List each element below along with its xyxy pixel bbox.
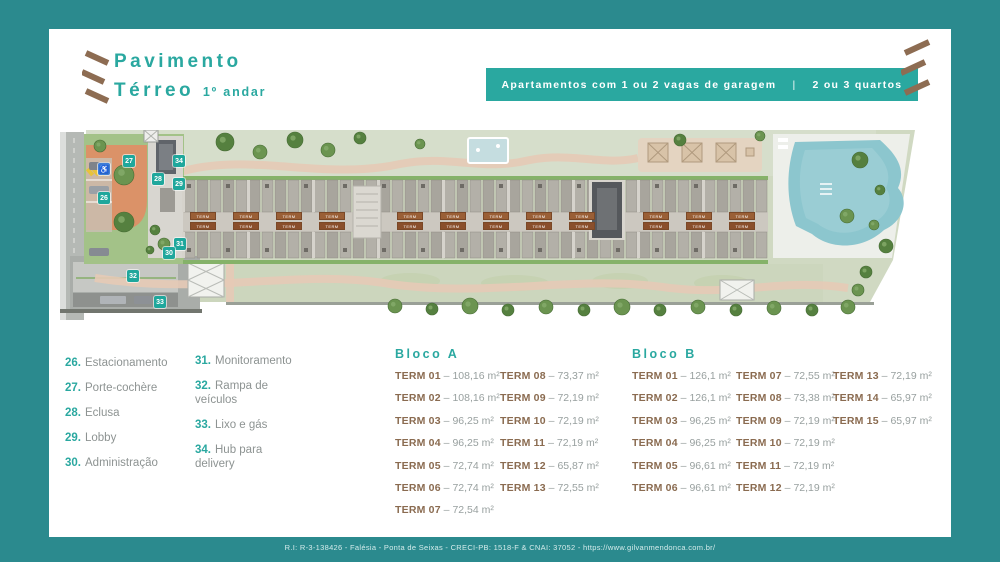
term-row: TERM 06 – 72,74 m² [395,482,500,504]
bloco-a-col1: TERM 01 – 108,16 m²TERM 02 – 108,16 m²TE… [395,370,500,527]
corner-hash-icon [901,39,931,105]
term-name: TERM 09 [736,415,782,427]
plan-term-bar: TERM [276,212,302,220]
term-name: TERM 11 [736,460,781,472]
legend-number: 31. [195,355,211,367]
plan-term-bar: TERM [686,212,712,220]
term-name: TERM 05 [632,460,678,472]
term-area: 96,61 m² [689,460,730,472]
term-name: TERM 08 [736,392,782,404]
title-suffix: 1º andar [203,85,266,99]
term-row: TERM 12 – 72,19 m² [736,482,835,504]
legend-number: 33. [195,419,211,431]
accessible-parking-icon: ♿ [98,163,110,175]
legend-number: 32. [195,380,211,392]
bloco-b-col3: TERM 13 – 72,19 m²TERM 14 – 65,97 m²TERM… [833,370,932,437]
term-dash: – [441,504,453,516]
term-row: TERM 10 – 72,19 m² [736,437,835,459]
plan-badge-33: 33 [154,296,166,308]
term-name: TERM 13 [833,370,879,382]
banner: Apartamentos com 1 ou 2 vagas de garagem… [486,68,918,101]
term-area: 65,97 m² [890,415,931,427]
term-dash: – [782,482,794,494]
plan-term-bar: TERM [729,222,755,230]
plan-badge-31: 31 [174,238,186,250]
bloco-a-col2: TERM 08 – 73,37 m²TERM 09 – 72,19 m²TERM… [500,370,599,504]
legend-item: 31.Monitoramento [195,354,299,368]
plan-badge-34: 34 [173,155,185,167]
legend-number: 30. [65,457,81,469]
term-row: TERM 09 – 72,19 m² [500,392,599,414]
plan-badge-27: 27 [123,155,135,167]
bloco-b-col1: TERM 01 – 126,1 m²TERM 02 – 126,1 m²TERM… [632,370,731,504]
legend-label: Porte-cochère [85,382,157,394]
legend-label: Eclusa [85,407,120,419]
plan-term-bar: TERM [233,212,259,220]
title-line1: Pavimento [114,51,266,73]
legend-item: 32.Rampa de veículos [195,379,299,407]
term-name: TERM 02 [395,392,441,404]
term-area: 72,19 m² [557,415,598,427]
content-panel: Pavimento Térreo 1º andar Apartamentos c… [49,29,951,537]
legend-item: 33.Lixo e gás [195,418,299,432]
legend-item: 29.Lobby [65,431,195,445]
term-area: 96,61 m² [689,482,730,494]
legend-label: Lixo e gás [215,419,267,431]
term-row: TERM 05 – 72,74 m² [395,460,500,482]
term-name: TERM 03 [632,415,678,427]
term-row: TERM 08 – 73,38 m² [736,392,835,414]
plan-term-bar: TERM [526,222,552,230]
term-row: TERM 03 – 96,25 m² [395,415,500,437]
term-row: TERM 13 – 72,19 m² [833,370,932,392]
plan-term-bar: TERM [643,212,669,220]
brand-hash-icon [82,50,110,114]
plan-badge-30: 30 [163,247,175,259]
term-row: TERM 12 – 65,87 m² [500,460,599,482]
term-area: 96,25 m² [452,437,493,449]
term-dash: – [441,437,453,449]
term-area: 108,16 m² [452,370,499,382]
term-dash: – [678,370,690,382]
term-area: 72,54 m² [452,504,493,516]
plan-term-bar: TERM [526,212,552,220]
term-dash: – [879,415,891,427]
plan-term-bar: TERM [190,212,216,220]
term-area: 96,25 m² [689,437,730,449]
term-name: TERM 12 [500,460,546,472]
plan-term-bar: TERM [686,222,712,230]
plan-term-bar: TERM [440,222,466,230]
term-dash: – [781,460,793,472]
term-row: TERM 11 – 72,19 m² [736,460,835,482]
term-dash: – [546,415,558,427]
term-row: TERM 07 – 72,54 m² [395,504,500,526]
term-row: TERM 14 – 65,97 m² [833,392,932,414]
bloco-a-title: Bloco A [395,347,459,361]
plan-badge-26: 26 [98,192,110,204]
plan-term-bar: TERM [643,222,669,230]
term-area: 108,16 m² [452,392,499,404]
term-area: 72,74 m² [452,460,493,472]
term-area: 73,37 m² [557,370,598,382]
term-name: TERM 07 [736,370,782,382]
legend-number: 29. [65,432,81,444]
site-plan: 272834292631303233♿TERMTERMTERMTERMTERMT… [60,130,940,322]
legend-column-1: 26.Estacionamento27.Porte-cochère28.Eclu… [65,356,195,481]
term-dash: – [441,482,453,494]
term-dash: – [441,460,453,472]
legend-label: Monitoramento [215,355,292,367]
term-area: 126,1 m² [689,370,730,382]
term-name: TERM 15 [833,415,879,427]
title-line2: Térreo [114,80,194,101]
legend-number: 28. [65,407,81,419]
term-row: TERM 13 – 72,55 m² [500,482,599,504]
slide: Pavimento Térreo 1º andar Apartamentos c… [0,0,1000,562]
banner-right-text: 2 ou 3 quartos [812,79,902,91]
term-area: 96,25 m² [452,415,493,427]
legend-column-2: 31.Monitoramento32.Rampa de veículos33.L… [195,354,299,482]
legend-number: 26. [65,357,81,369]
banner-left-text: Apartamentos com 1 ou 2 vagas de garagem [502,79,777,91]
bloco-b-col2: TERM 07 – 72,55 m²TERM 08 – 73,38 m²TERM… [736,370,835,504]
term-area: 96,25 m² [689,415,730,427]
plan-badge-29: 29 [173,178,185,190]
term-row: TERM 02 – 108,16 m² [395,392,500,414]
term-area: 72,19 m² [557,437,598,449]
plan-term-bar: TERM [440,212,466,220]
term-row: TERM 06 – 96,61 m² [632,482,731,504]
plan-term-bar: TERM [190,222,216,230]
legend-number: 27. [65,382,81,394]
plan-term-bar: TERM [483,212,509,220]
plan-term-bar: TERM [319,212,345,220]
legend-item: 27.Porte-cochère [65,381,195,395]
legend-item: 26.Estacionamento [65,356,195,370]
term-name: TERM 03 [395,415,441,427]
plan-badge-28: 28 [152,173,164,185]
term-area: 65,87 m² [557,460,598,472]
term-area: 72,74 m² [452,482,493,494]
term-dash: – [441,370,453,382]
term-name: TERM 14 [833,392,879,404]
term-row: TERM 09 – 72,19 m² [736,415,835,437]
term-area: 65,97 m² [890,392,931,404]
term-row: TERM 15 – 65,97 m² [833,415,932,437]
term-row: TERM 07 – 72,55 m² [736,370,835,392]
term-area: 72,19 m² [793,460,834,472]
term-dash: – [678,392,690,404]
term-row: TERM 03 – 96,25 m² [632,415,731,437]
plan-badge-32: 32 [127,270,139,282]
term-dash: – [678,437,690,449]
plan-term-bar: TERM [397,212,423,220]
term-dash: – [441,415,453,427]
term-name: TERM 10 [500,415,546,427]
plan-term-bar: TERM [397,222,423,230]
term-area: 72,19 m² [793,437,834,449]
legend-item: 34.Hub para delivery [195,443,299,471]
term-name: TERM 13 [500,482,546,494]
legend-item: 28.Eclusa [65,406,195,420]
term-row: TERM 11 – 72,19 m² [500,437,599,459]
term-name: TERM 12 [736,482,782,494]
term-dash: – [678,460,690,472]
term-dash: – [545,437,557,449]
term-dash: – [678,415,690,427]
plan-term-bar: TERM [319,222,345,230]
term-dash: – [546,370,558,382]
term-dash: – [879,392,891,404]
legend-item: 30.Administração [65,456,195,470]
term-area: 72,55 m² [793,370,834,382]
term-dash: – [782,392,794,404]
plan-term-bar: TERM [569,212,595,220]
term-name: TERM 11 [500,437,545,449]
term-row: TERM 08 – 73,37 m² [500,370,599,392]
term-dash: – [546,460,558,472]
term-name: TERM 07 [395,504,441,516]
legend-label: Administração [85,457,158,469]
term-name: TERM 01 [395,370,441,382]
term-dash: – [879,370,891,382]
legend-label: Lobby [85,432,116,444]
term-row: TERM 05 – 96,61 m² [632,460,731,482]
term-area: 73,38 m² [793,392,834,404]
banner-separator: | [792,79,796,91]
term-dash: – [678,482,690,494]
term-area: 72,55 m² [557,482,598,494]
plan-term-bar: TERM [483,222,509,230]
term-area: 72,19 m² [557,392,598,404]
plan-term-bar: TERM [729,212,755,220]
plan-term-bar: TERM [233,222,259,230]
term-name: TERM 10 [736,437,782,449]
legend-number: 34. [195,444,211,456]
term-row: TERM 04 – 96,25 m² [395,437,500,459]
term-name: TERM 02 [632,392,678,404]
term-dash: – [441,392,453,404]
plan-term-bar: TERM [276,222,302,230]
term-dash: – [782,370,794,382]
term-row: TERM 01 – 126,1 m² [632,370,731,392]
term-name: TERM 01 [632,370,678,382]
term-dash: – [546,392,558,404]
term-name: TERM 04 [395,437,441,449]
term-area: 72,19 m² [890,370,931,382]
term-area: 126,1 m² [689,392,730,404]
term-name: TERM 06 [395,482,441,494]
term-row: TERM 04 – 96,25 m² [632,437,731,459]
bloco-b-title: Bloco B [632,347,697,361]
term-dash: – [782,415,794,427]
term-dash: – [782,437,794,449]
term-name: TERM 05 [395,460,441,472]
term-name: TERM 04 [632,437,678,449]
term-row: TERM 01 – 108,16 m² [395,370,500,392]
term-name: TERM 09 [500,392,546,404]
plan-term-bar: TERM [569,222,595,230]
footer-legal-text: R.I: R-3-138426 - Falésia - Ponta de Sei… [0,543,1000,552]
legend-label: Estacionamento [85,357,167,369]
page-title: Pavimento Térreo 1º andar [114,51,266,102]
term-area: 72,19 m² [793,482,834,494]
term-name: TERM 06 [632,482,678,494]
term-name: TERM 08 [500,370,546,382]
term-row: TERM 02 – 126,1 m² [632,392,731,414]
term-dash: – [546,482,558,494]
term-row: TERM 10 – 72,19 m² [500,415,599,437]
term-area: 72,19 m² [793,415,834,427]
